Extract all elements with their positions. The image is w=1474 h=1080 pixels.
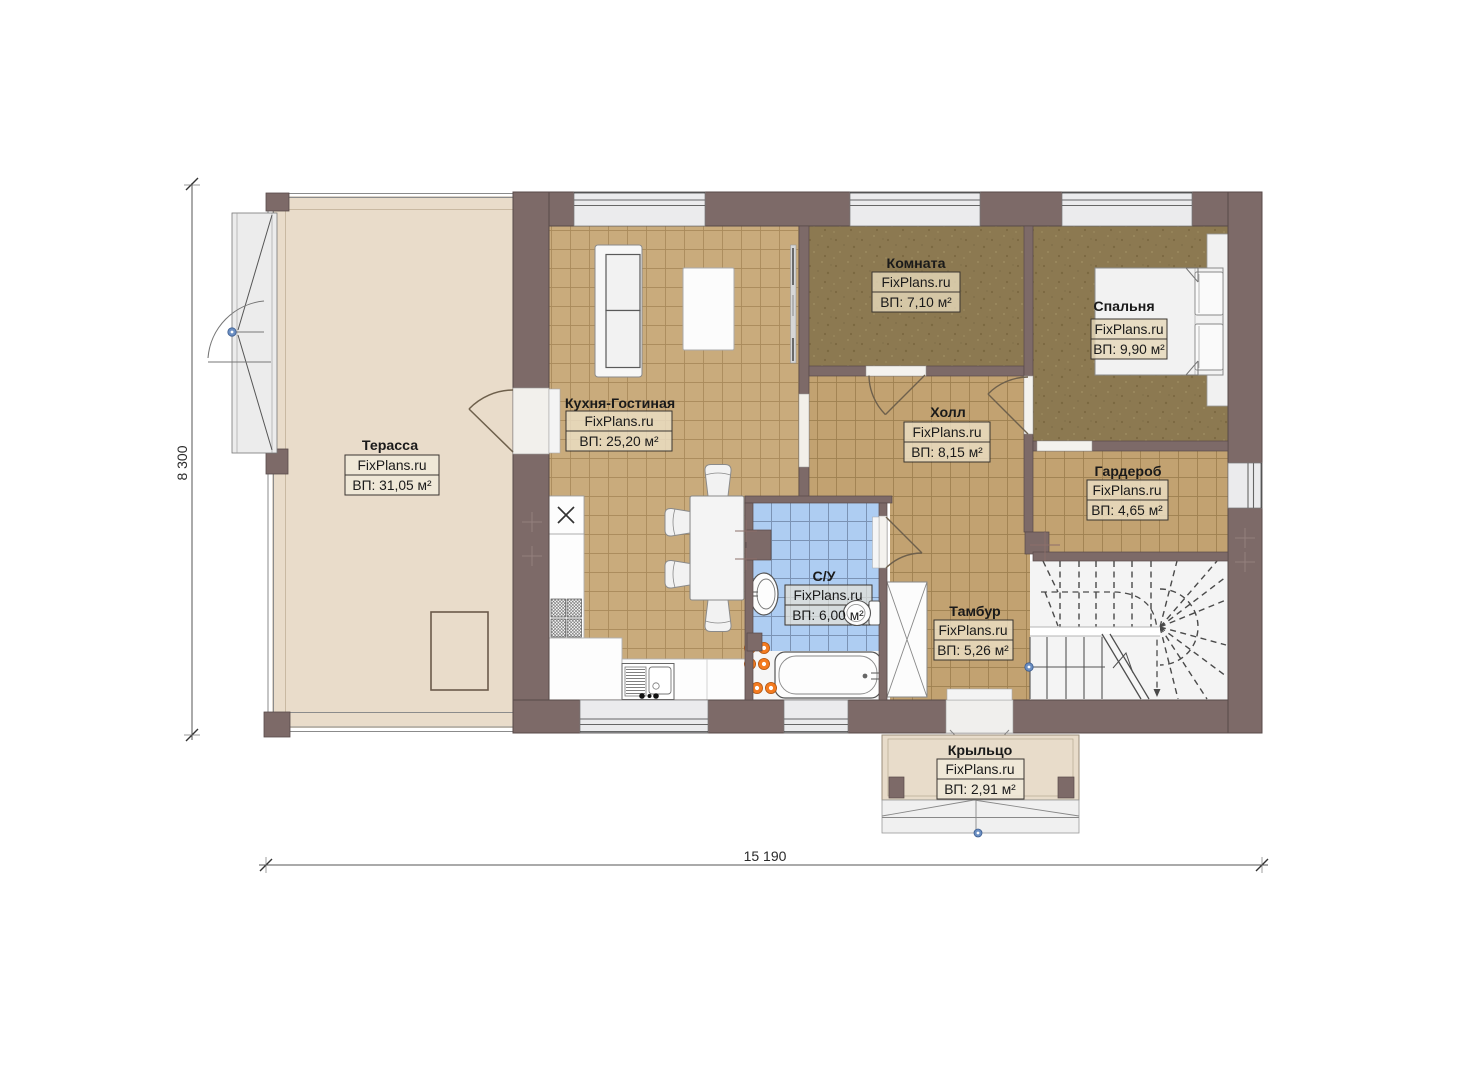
svg-text:ВП: 25,20 м²: ВП: 25,20 м²	[579, 434, 659, 449]
svg-text:FixPlans.ru: FixPlans.ru	[1094, 322, 1163, 337]
svg-text:FixPlans.ru: FixPlans.ru	[912, 425, 981, 440]
svg-text:Спальня: Спальня	[1093, 299, 1154, 315]
svg-text:ВП: 5,26 м²: ВП: 5,26 м²	[937, 643, 1009, 658]
svg-text:ВП: 2,91 м²: ВП: 2,91 м²	[944, 782, 1016, 797]
svg-text:FixPlans.ru: FixPlans.ru	[584, 414, 653, 429]
svg-text:ВП: 7,10 м²: ВП: 7,10 м²	[880, 295, 952, 310]
svg-text:FixPlans.ru: FixPlans.ru	[881, 275, 950, 290]
svg-text:FixPlans.ru: FixPlans.ru	[357, 458, 426, 473]
svg-text:ВП: 9,90 м²: ВП: 9,90 м²	[1093, 342, 1165, 357]
svg-text:Холл: Холл	[930, 405, 966, 421]
svg-text:Кухня-Гостиная: Кухня-Гостиная	[565, 396, 675, 412]
svg-text:FixPlans.ru: FixPlans.ru	[1092, 483, 1161, 498]
svg-text:FixPlans.ru: FixPlans.ru	[938, 623, 1007, 638]
svg-text:ВП: 4,65 м²: ВП: 4,65 м²	[1091, 503, 1163, 518]
svg-text:Комната: Комната	[887, 256, 946, 272]
svg-text:Гардероб: Гардероб	[1094, 464, 1161, 480]
svg-text:FixPlans.ru: FixPlans.ru	[945, 762, 1014, 777]
svg-text:Крыльцо: Крыльцо	[948, 743, 1013, 759]
svg-text:ВП: 6,00 м²: ВП: 6,00 м²	[792, 608, 864, 623]
svg-text:8 300: 8 300	[174, 445, 190, 480]
svg-text:FixPlans.ru: FixPlans.ru	[793, 588, 862, 603]
svg-text:ВП: 8,15 м²: ВП: 8,15 м²	[911, 445, 983, 460]
svg-text:Терасса: Терасса	[362, 438, 418, 454]
svg-text:Тамбур: Тамбур	[949, 604, 1001, 620]
svg-text:15 190: 15 190	[744, 848, 787, 864]
svg-text:ВП: 31,05 м²: ВП: 31,05 м²	[352, 478, 432, 493]
svg-text:С/У: С/У	[812, 569, 835, 585]
